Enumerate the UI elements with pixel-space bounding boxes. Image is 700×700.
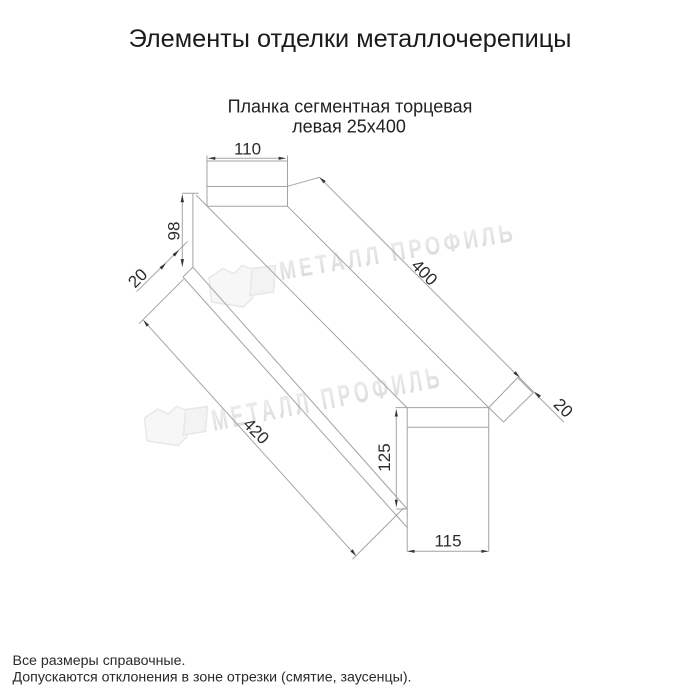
svg-text:Допускаются отклонения в зоне: Допускаются отклонения в зоне отрезки (с…	[13, 669, 412, 685]
svg-text:левая 25х400: левая 25х400	[292, 117, 406, 137]
svg-text:Все размеры справочные.: Все размеры справочные.	[13, 653, 186, 669]
svg-text:Планка сегментная торцевая: Планка сегментная торцевая	[228, 97, 473, 117]
svg-text:Элементы отделки металлочерепи: Элементы отделки металлочерепицы	[129, 25, 572, 53]
svg-text:125: 125	[375, 443, 394, 471]
svg-text:115: 115	[434, 532, 461, 551]
svg-text:20: 20	[550, 395, 577, 422]
svg-text:МЕТАЛЛ ПРОФИЛЬ: МЕТАЛЛ ПРОФИЛЬ	[277, 217, 518, 286]
svg-text:98: 98	[165, 222, 184, 241]
svg-text:20: 20	[124, 265, 151, 292]
svg-text:110: 110	[234, 139, 261, 158]
